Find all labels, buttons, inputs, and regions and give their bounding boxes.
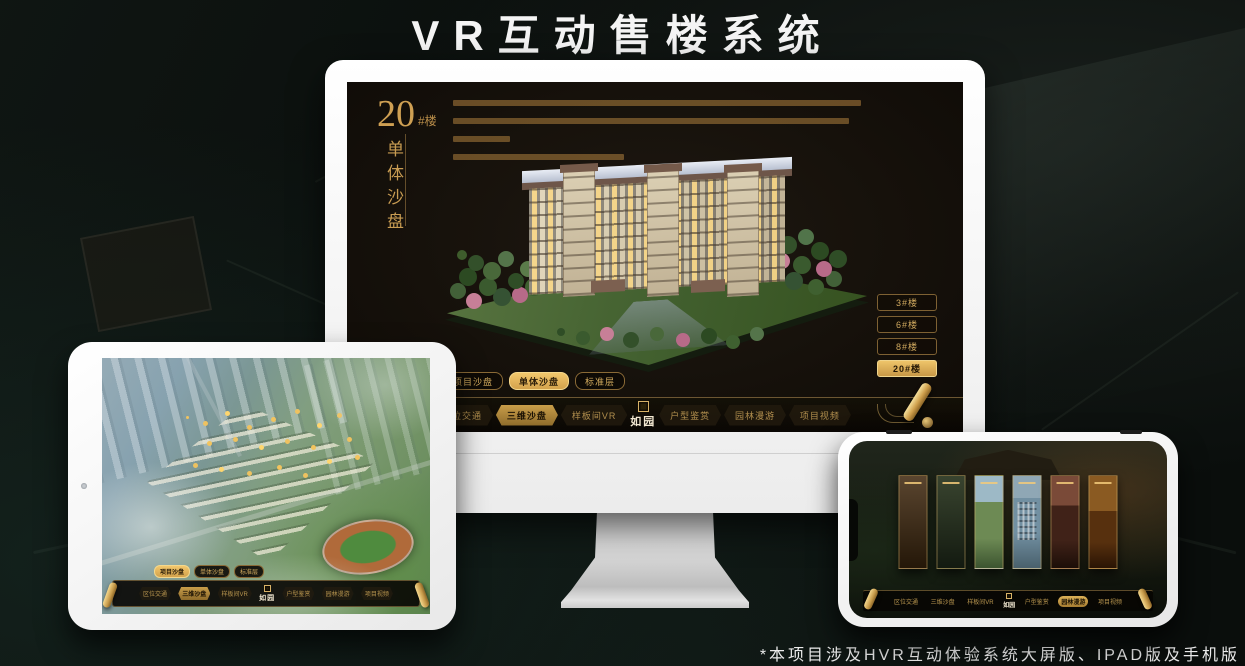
phone-brand-logo: 如园 — [1003, 593, 1015, 609]
brand-logo-text: 如园 — [259, 593, 275, 603]
shrub-row — [557, 328, 565, 336]
phone-nav-item-location-traffic[interactable]: 区位交通 — [891, 596, 921, 607]
phone-nav-item-project-video[interactable]: 项目视频 — [1095, 596, 1125, 607]
phone-nav-item-showroom-vr[interactable]: 样板间VR — [964, 596, 996, 607]
phone-volume-button — [886, 430, 912, 434]
tablet-nav-item-garden-roam[interactable]: 园林漫游 — [322, 587, 354, 600]
scene-card-courtyard[interactable] — [937, 475, 966, 569]
scene-card-interior[interactable] — [899, 475, 928, 569]
building-button-6[interactable]: 6#楼 — [877, 316, 937, 333]
page-title: VR互动售楼系统 — [0, 2, 1245, 63]
tablet-nav-item-showroom-vr[interactable]: 样板间VR — [218, 587, 252, 600]
heading-divider — [405, 134, 406, 226]
text-line — [453, 136, 510, 142]
building-tower — [727, 169, 759, 297]
tablet-tab-project-sandtable[interactable]: 项目沙盘 — [154, 565, 190, 578]
tablet-nav-bar: 区位交通 三维沙盘 样板间VR 如园 户型鉴赏 园林漫游 项目视频 — [112, 580, 420, 607]
tab-single-sandtable[interactable]: 单体沙盘 — [509, 372, 569, 390]
scene-card-lounge[interactable] — [1089, 475, 1118, 569]
text-line — [453, 100, 861, 106]
phone-nav-bar: 区位交通 三维沙盘 样板间VR 如园 户型鉴赏 园林漫游 项目视频 — [863, 590, 1153, 611]
building-subtitle: 单体沙盘 — [381, 140, 406, 236]
tree-cluster — [457, 250, 467, 260]
brand-seal-icon — [638, 401, 649, 412]
nav-item-showroom-vr[interactable]: 样板间VR — [561, 405, 628, 426]
building-3d-render[interactable] — [437, 152, 877, 390]
building-button-8[interactable]: 8#楼 — [877, 338, 937, 355]
tablet-nav-item-project-video[interactable]: 项目视频 — [361, 587, 393, 600]
tablet-screen: 项目沙盘 单体沙盘 标准层 区位交通 三维沙盘 样板间VR 如园 户型鉴赏 园林… — [102, 358, 430, 614]
building-tower — [563, 169, 595, 297]
tablet-tab-standard-floor[interactable]: 标准层 — [234, 565, 264, 578]
phone-nav-item-3d-sandtable[interactable]: 三维沙盘 — [928, 596, 958, 607]
tab-standard-floor[interactable]: 标准层 — [575, 372, 625, 390]
nav-item-3d-sandtable[interactable]: 三维沙盘 — [496, 405, 558, 426]
nav-item-project-video[interactable]: 项目视频 — [789, 405, 851, 426]
scroll-roll-end-icon — [922, 417, 933, 428]
scene-card-building[interactable] — [1013, 475, 1042, 569]
building-button-20[interactable]: 20#楼 — [877, 360, 937, 377]
nav-item-garden-roam[interactable]: 园林漫游 — [724, 405, 786, 426]
brand-logo-text: 如园 — [1003, 600, 1015, 609]
phone-screen: 区位交通 三维沙盘 样板间VR 如园 户型鉴赏 园林漫游 项目视频 — [849, 441, 1167, 618]
tablet-sandtable-tabs: 项目沙盘 单体沙盘 标准层 — [154, 565, 264, 578]
tablet-nav-item-floorplan[interactable]: 户型鉴赏 — [282, 587, 314, 600]
footnote-text: *本项目涉及HVR互动体验系统大屏版、IPAD版及手机版 — [760, 641, 1240, 665]
tablet-nav-item-3d-sandtable[interactable]: 三维沙盘 — [178, 587, 210, 600]
tablet-camera-icon — [81, 483, 87, 489]
building-selector: 3#楼 6#楼 8#楼 20#楼 — [877, 294, 937, 377]
scene-card-carousel — [899, 475, 1118, 569]
scene-card-garden[interactable] — [975, 475, 1004, 569]
sandtable-tabs: 项目沙盘 单体沙盘 标准层 — [443, 372, 625, 390]
residential-building — [529, 164, 785, 296]
building-entrance — [691, 279, 725, 293]
building-button-3[interactable]: 3#楼 — [877, 294, 937, 311]
brand-seal-icon — [264, 585, 271, 592]
nav-item-floorplan[interactable]: 户型鉴赏 — [659, 405, 721, 426]
tablet-brand-logo: 如园 — [259, 585, 275, 603]
tablet-nav-item-location-traffic[interactable]: 区位交通 — [139, 587, 171, 600]
poster-canvas: VR互动售楼系统 20 #楼 单体沙盘 — [0, 0, 1245, 666]
scene-card-autumn[interactable] — [1051, 475, 1080, 569]
building-heading: 20 #楼 单体沙盘 — [377, 96, 437, 236]
project-aerial-view[interactable] — [102, 358, 430, 614]
tablet-device: 项目沙盘 单体沙盘 标准层 区位交通 三维沙盘 样板间VR 如园 户型鉴赏 园林… — [68, 342, 456, 630]
building-number: 20 — [377, 96, 415, 132]
phone-nav-item-garden-roam[interactable]: 园林漫游 — [1058, 596, 1088, 607]
phone-nav-item-floorplan[interactable]: 户型鉴赏 — [1022, 596, 1052, 607]
brand-logo: 如园 — [630, 401, 656, 429]
text-line — [453, 118, 849, 124]
scroll-ornament — [877, 381, 943, 431]
building-number-badges — [186, 416, 189, 419]
tablet-tab-single-sandtable[interactable]: 单体沙盘 — [194, 565, 230, 578]
building-number-unit: #楼 — [418, 112, 437, 129]
phone-device: 区位交通 三维沙盘 样板间VR 如园 户型鉴赏 园林漫游 项目视频 — [838, 432, 1178, 627]
brand-seal-icon — [1006, 593, 1012, 599]
phone-power-button — [1120, 430, 1142, 434]
phone-notch — [849, 499, 858, 561]
building-entrance — [591, 279, 625, 293]
brand-logo-text: 如园 — [630, 413, 656, 429]
building-tower — [647, 169, 679, 297]
